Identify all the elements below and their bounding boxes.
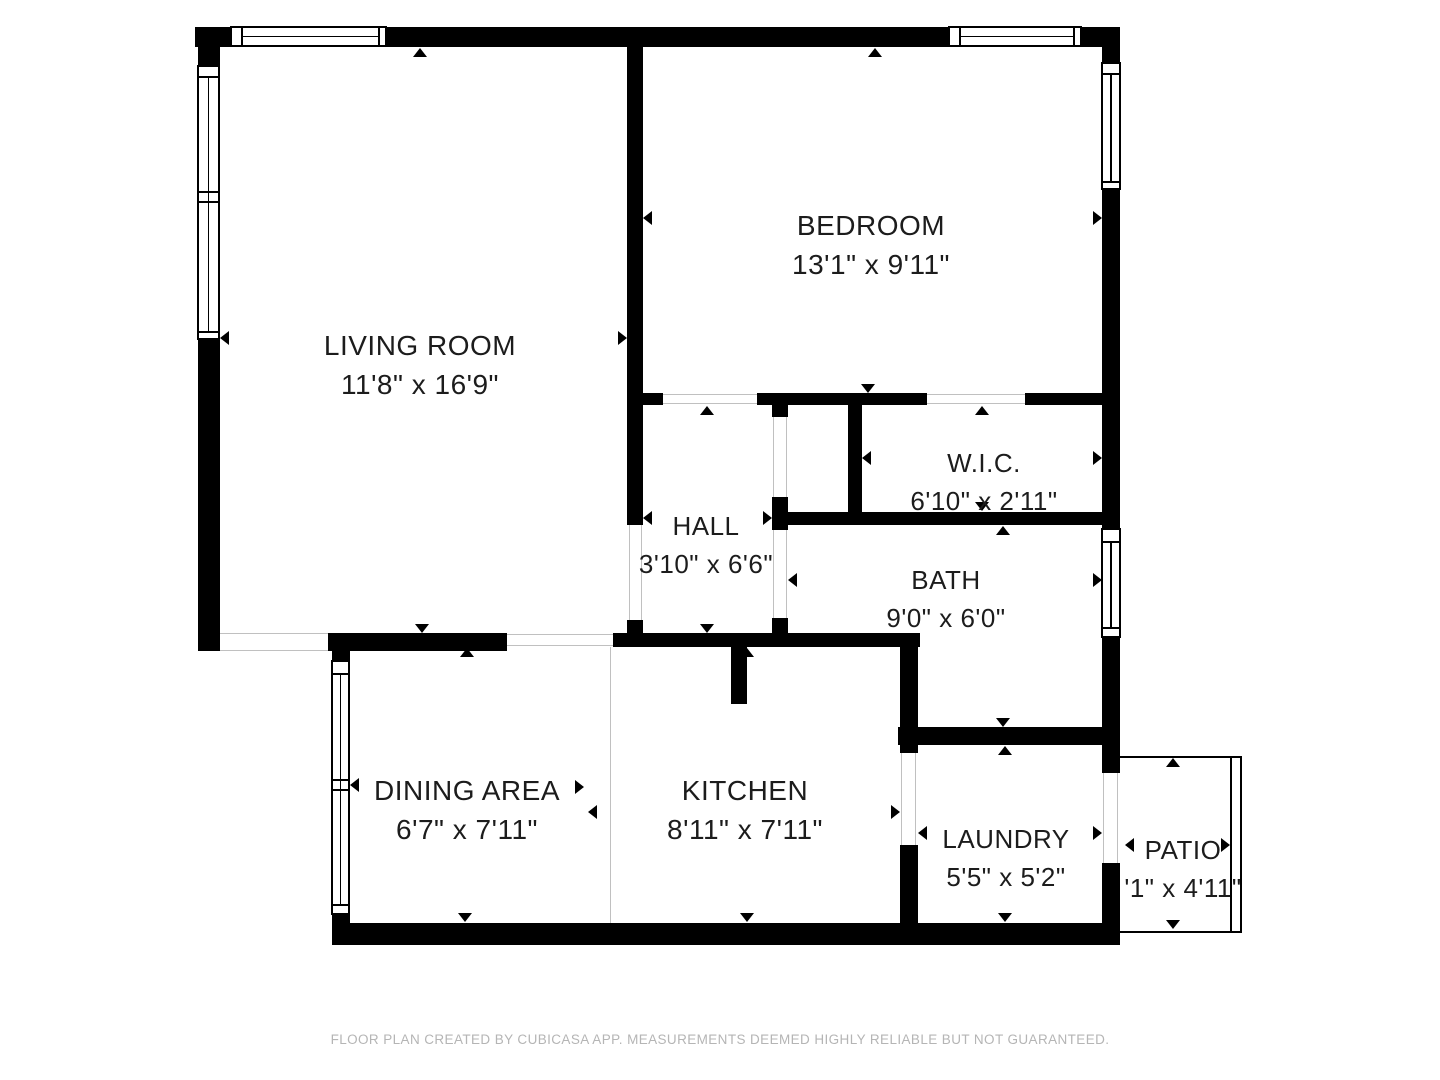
window-glass-line	[1110, 74, 1112, 182]
opening-line	[786, 417, 787, 497]
dimension-arrow	[575, 780, 584, 794]
opening-line	[507, 634, 613, 635]
dimension-arrow	[350, 778, 359, 792]
wall	[198, 27, 220, 65]
room-label-bedroom: BEDROOM13'1" x 9'11"	[792, 210, 950, 281]
wall	[198, 340, 220, 651]
room-name: LAUNDRY	[942, 824, 1069, 855]
room-dimensions: 6'7" x 7'11"	[374, 814, 560, 846]
dimension-arrow	[220, 331, 229, 345]
opening-line	[915, 753, 916, 845]
dimension-arrow	[868, 48, 882, 57]
room-label-hall: HALL3'10" x 6'6"	[639, 511, 773, 580]
wall	[1102, 47, 1120, 62]
wall	[898, 727, 1102, 745]
opening-line	[610, 647, 611, 923]
dimension-arrow	[588, 805, 597, 819]
room-dimensions: 5'5" x 5'2"	[942, 862, 1069, 893]
wall	[643, 393, 663, 405]
wall	[1082, 27, 1120, 47]
window-glass-line	[960, 36, 1074, 38]
room-dimensions: 9'0" x 6'0"	[886, 603, 1005, 634]
opening-line	[773, 530, 774, 618]
dimension-arrow	[1166, 758, 1180, 767]
window-glass-line	[242, 36, 379, 38]
wall	[613, 633, 920, 647]
opening-line	[663, 403, 757, 404]
window-glass-line	[340, 674, 342, 905]
dimension-arrow	[862, 451, 871, 465]
room-name: HALL	[639, 511, 773, 542]
dimension-arrow	[788, 573, 797, 587]
room-dimensions: 11'8" x 16'9"	[324, 369, 516, 401]
opening-line	[1117, 773, 1118, 863]
dimension-arrow	[1093, 573, 1102, 587]
opening-line	[927, 394, 1025, 395]
wall	[757, 393, 927, 405]
dimension-arrow	[700, 624, 714, 633]
opening-line	[663, 394, 757, 395]
dimension-arrow	[1166, 920, 1180, 929]
wall	[772, 405, 788, 417]
opening-line	[220, 650, 328, 651]
room-label-wic: W.I.C.6'10" x 2'11"	[910, 448, 1057, 517]
opening-line	[901, 753, 902, 845]
dimension-arrow	[458, 913, 472, 922]
window	[230, 26, 387, 47]
wall	[1102, 745, 1120, 773]
window-glass-line	[208, 77, 210, 332]
dimension-arrow	[643, 211, 652, 225]
dimension-arrow	[413, 48, 427, 57]
dimension-arrow	[918, 826, 927, 840]
room-dimensions: 8'11" x 7'11"	[667, 814, 823, 846]
dimension-arrow	[1093, 451, 1102, 465]
wall	[332, 633, 350, 662]
room-label-dining-area: DINING AREA6'7" x 7'11"	[374, 775, 560, 846]
room-name: W.I.C.	[910, 448, 1057, 479]
opening-line	[1103, 773, 1104, 863]
room-dimensions: '1" x 4'11"	[1124, 873, 1241, 904]
room-label-laundry: LAUNDRY5'5" x 5'2"	[942, 824, 1069, 893]
wall	[1025, 393, 1102, 405]
dimension-arrow	[700, 406, 714, 415]
window	[331, 660, 350, 915]
wall	[1102, 863, 1120, 923]
wall	[1102, 190, 1120, 528]
dimension-arrow	[998, 746, 1012, 755]
room-label-living-room: LIVING ROOM11'8" x 16'9"	[324, 330, 516, 401]
wall	[332, 923, 1120, 945]
room-dimensions: 6'10" x 2'11"	[910, 486, 1057, 517]
dimension-arrow	[998, 913, 1012, 922]
dimension-arrow	[861, 384, 875, 393]
room-name: BATH	[886, 565, 1005, 596]
floor-plan: FLOOR PLAN CREATED BY CUBICASA APP. MEAS…	[0, 0, 1440, 1080]
dimension-arrow	[460, 648, 474, 657]
room-name: BEDROOM	[792, 210, 950, 242]
dimension-arrow	[1093, 211, 1102, 225]
opening-line	[773, 417, 774, 497]
wall	[387, 27, 948, 47]
room-dimensions: 3'10" x 6'6"	[639, 549, 773, 580]
window	[948, 26, 1082, 47]
room-name: KITCHEN	[667, 775, 823, 807]
dimension-arrow	[996, 526, 1010, 535]
dimension-arrow	[891, 805, 900, 819]
footer-disclaimer: FLOOR PLAN CREATED BY CUBICASA APP. MEAS…	[0, 1032, 1440, 1047]
wall	[328, 633, 507, 651]
wall	[627, 47, 643, 525]
dimension-arrow	[740, 648, 754, 657]
room-label-kitchen: KITCHEN8'11" x 7'11"	[667, 775, 823, 846]
dimension-arrow	[618, 331, 627, 345]
room-name: DINING AREA	[374, 775, 560, 807]
dimension-arrow	[415, 624, 429, 633]
room-name: PATIO	[1124, 835, 1241, 866]
dimension-arrow	[740, 913, 754, 922]
dimension-arrow	[975, 406, 989, 415]
opening-line	[220, 633, 328, 634]
opening-line	[507, 645, 613, 646]
room-name: LIVING ROOM	[324, 330, 516, 362]
wall	[848, 405, 862, 513]
room-label-patio: PATIO'1" x 4'11"	[1124, 835, 1241, 904]
wall	[1102, 638, 1120, 753]
window	[1101, 528, 1121, 638]
opening-line	[786, 530, 787, 618]
dimension-arrow	[1093, 826, 1102, 840]
dimension-arrow	[996, 718, 1010, 727]
room-dimensions: 13'1" x 9'11"	[792, 249, 950, 281]
wall	[900, 845, 918, 923]
window	[197, 65, 220, 340]
window-glass-line	[1110, 542, 1112, 628]
opening-line	[629, 525, 630, 620]
opening-line	[927, 403, 1025, 404]
window	[1101, 62, 1121, 190]
room-label-bath: BATH9'0" x 6'0"	[886, 565, 1005, 634]
